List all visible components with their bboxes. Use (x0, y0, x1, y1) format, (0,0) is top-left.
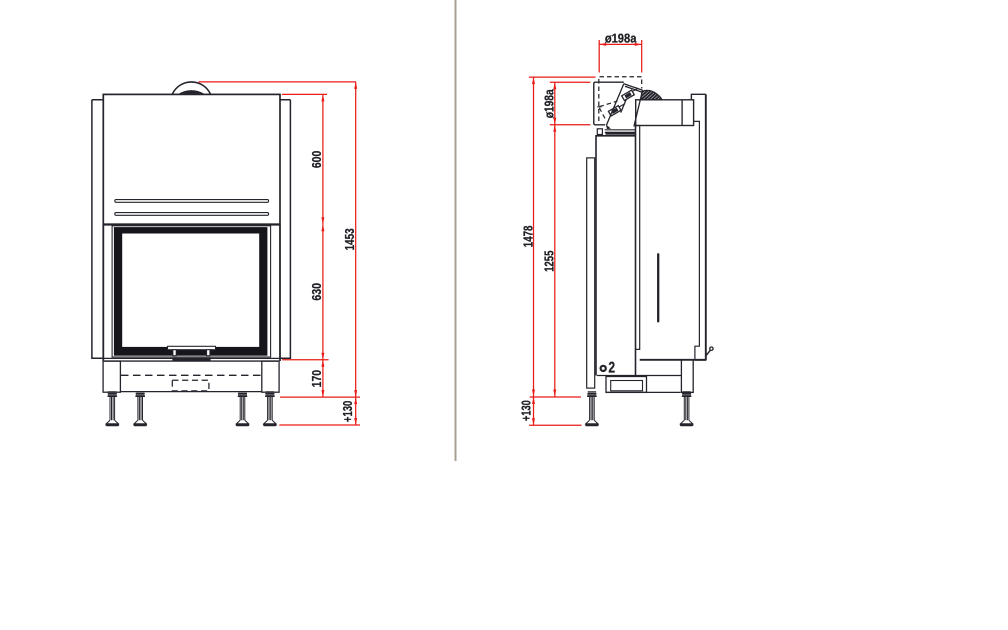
svg-text:ø198a: ø198a (605, 31, 637, 46)
svg-text:630: 630 (309, 283, 324, 301)
svg-text:1478: 1478 (520, 226, 535, 248)
svg-text:170: 170 (309, 370, 324, 388)
svg-text:600: 600 (309, 151, 324, 169)
svg-text:+130: +130 (340, 401, 355, 422)
svg-text:2: 2 (608, 360, 615, 377)
svg-text:+130: +130 (518, 400, 533, 421)
svg-text:1255: 1255 (541, 251, 556, 272)
svg-text:1453: 1453 (342, 228, 357, 250)
svg-text:ø198a: ø198a (542, 89, 557, 119)
